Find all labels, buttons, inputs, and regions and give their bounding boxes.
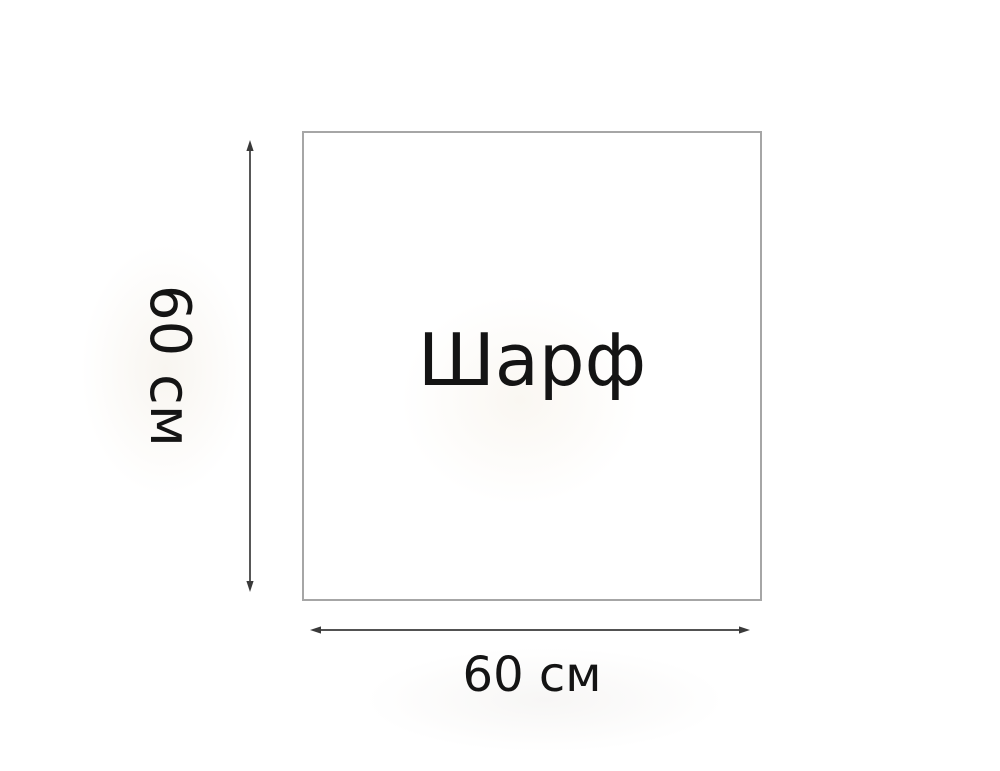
height-dimension-label: 60 см	[137, 256, 201, 476]
scarf-dimension-diagram: Шарф 60 см 60 см	[0, 0, 1000, 771]
double-arrow-horizontal-icon	[310, 626, 750, 633]
scarf-label: Шарф	[418, 324, 646, 396]
double-arrow-vertical-icon	[246, 140, 253, 592]
scarf-square: Шарф	[302, 131, 762, 601]
width-dimension-label: 60 см	[372, 649, 692, 701]
